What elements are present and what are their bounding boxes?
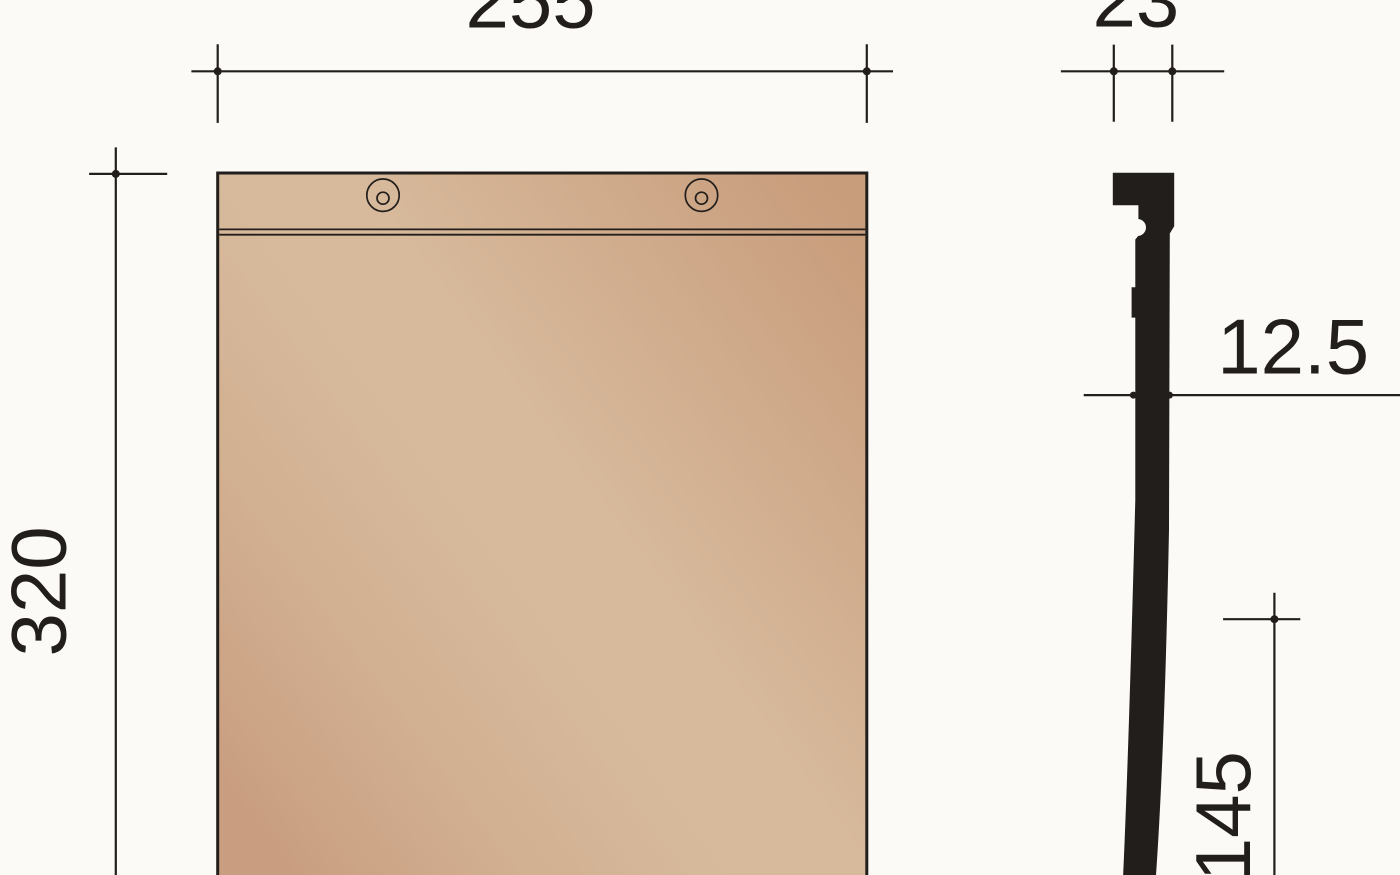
svg-text:320: 320	[0, 526, 82, 656]
svg-text:23: 23	[1093, 0, 1180, 44]
svg-text:255: 255	[466, 0, 596, 45]
svg-text:145: 145	[1179, 751, 1267, 875]
svg-text:12.5: 12.5	[1217, 302, 1369, 390]
